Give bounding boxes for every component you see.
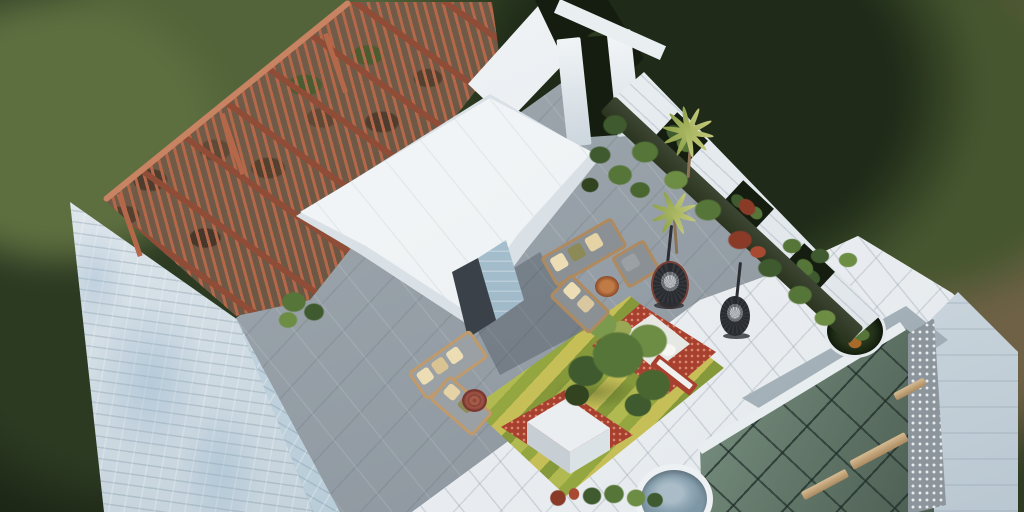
sofa-cushion [576,294,596,314]
sofa-cushion [415,366,434,385]
round-pouf [462,389,487,412]
sofa-cushion [549,252,569,272]
egg-chair-base [723,333,750,339]
coffee-table [595,276,619,297]
sofa-cushion [562,281,582,301]
hanging-egg-chair-2 [720,296,750,336]
egg-chair-base [654,302,684,309]
sofa-cushion [584,232,604,252]
armchair-cushion [620,252,641,272]
planter-hedge [0,0,1024,512]
sofa-cushion [566,242,586,262]
rooftop-render [0,0,1024,512]
deck-bush [268,278,340,338]
sofa-cushion [430,356,449,375]
core-side-shrubs [575,130,665,210]
roof-edge-shrubs [540,478,670,512]
sofa-cushion [445,346,464,365]
sofa-cushion [442,383,461,402]
palm-plant-1 [660,108,720,178]
